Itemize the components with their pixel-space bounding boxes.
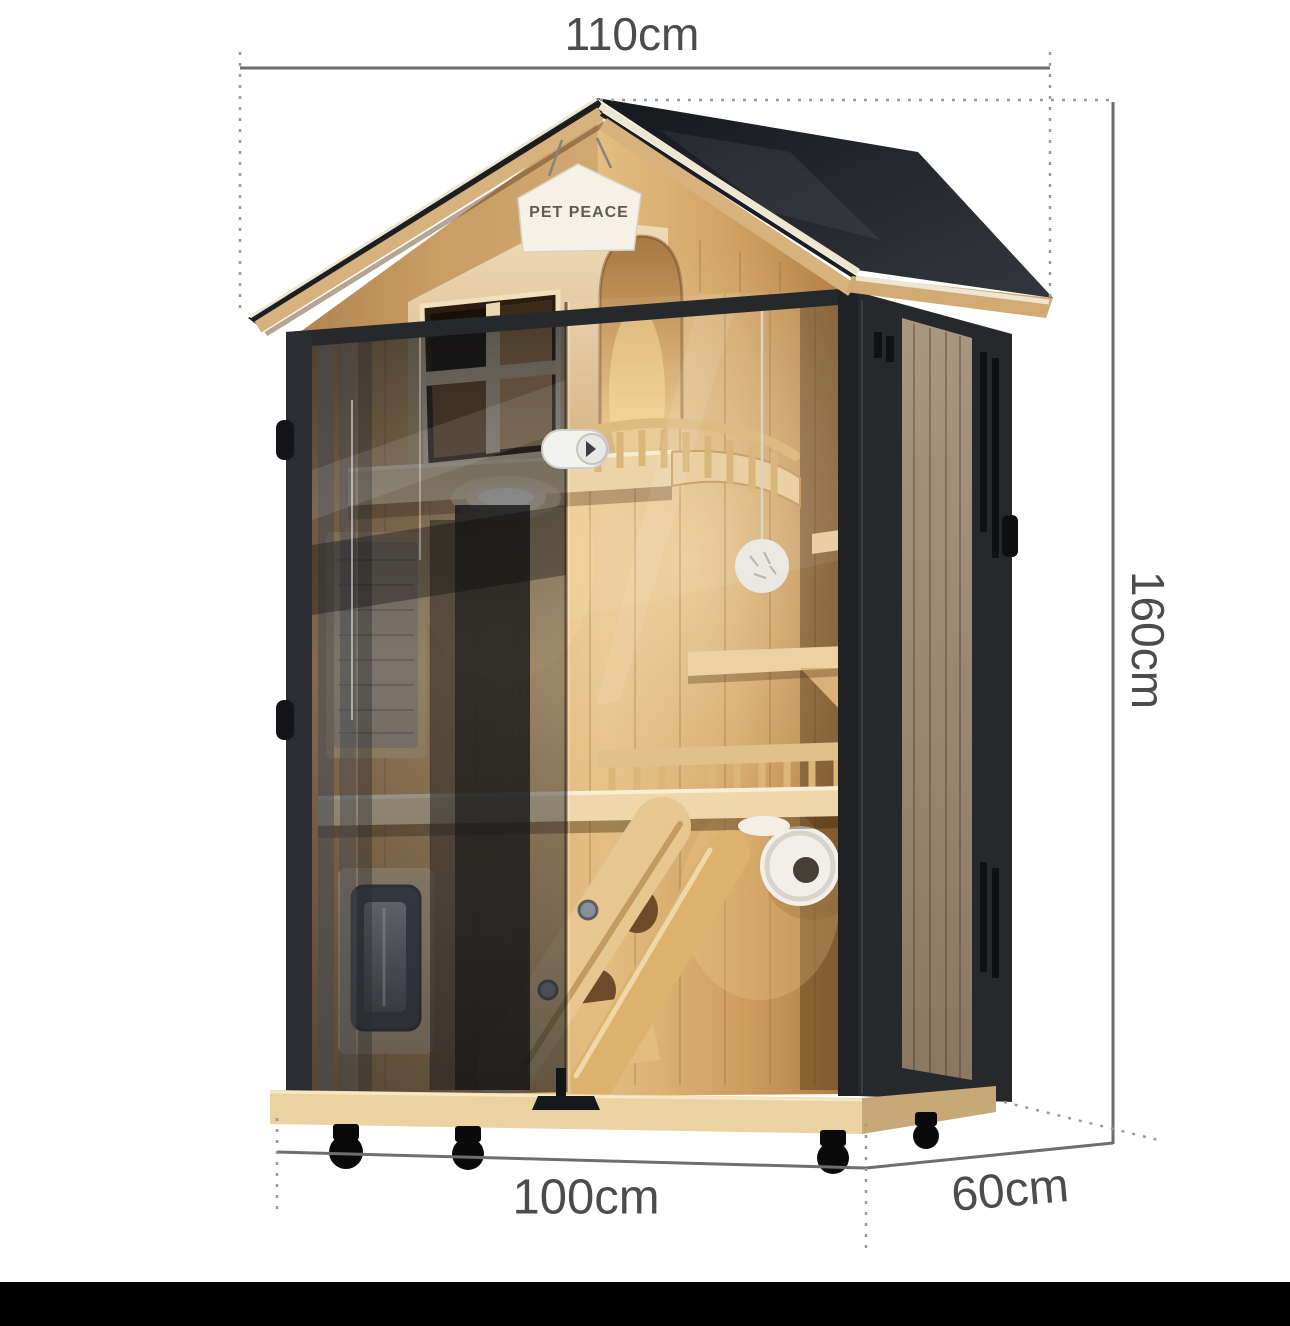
door-latch bbox=[542, 430, 608, 468]
side-panel bbox=[858, 292, 1018, 1102]
height-label: 160cm bbox=[1125, 571, 1171, 709]
side-handle bbox=[1002, 515, 1018, 557]
hinge bbox=[276, 420, 294, 460]
right-column bbox=[838, 288, 860, 1096]
depth-label: 60cm bbox=[949, 1162, 1070, 1220]
pet-house-illustration bbox=[0, 0, 1290, 1326]
bottom-width-line bbox=[277, 1152, 866, 1168]
puck-light-lower bbox=[738, 816, 790, 836]
depth-line bbox=[866, 1143, 1113, 1168]
pet-peace-sign-text: PET PEACE bbox=[529, 204, 629, 222]
left-glass-door bbox=[312, 312, 566, 1098]
top-width-label: 110cm bbox=[565, 11, 700, 57]
side-wood-slat bbox=[902, 318, 972, 1080]
product-dimension-image: 110cm 160cm 100cm 60cm PET PEACE bbox=[0, 0, 1290, 1326]
bottom-black-bar bbox=[0, 1282, 1290, 1326]
hinge bbox=[276, 700, 294, 740]
bottom-width-label: 100cm bbox=[512, 1174, 659, 1223]
